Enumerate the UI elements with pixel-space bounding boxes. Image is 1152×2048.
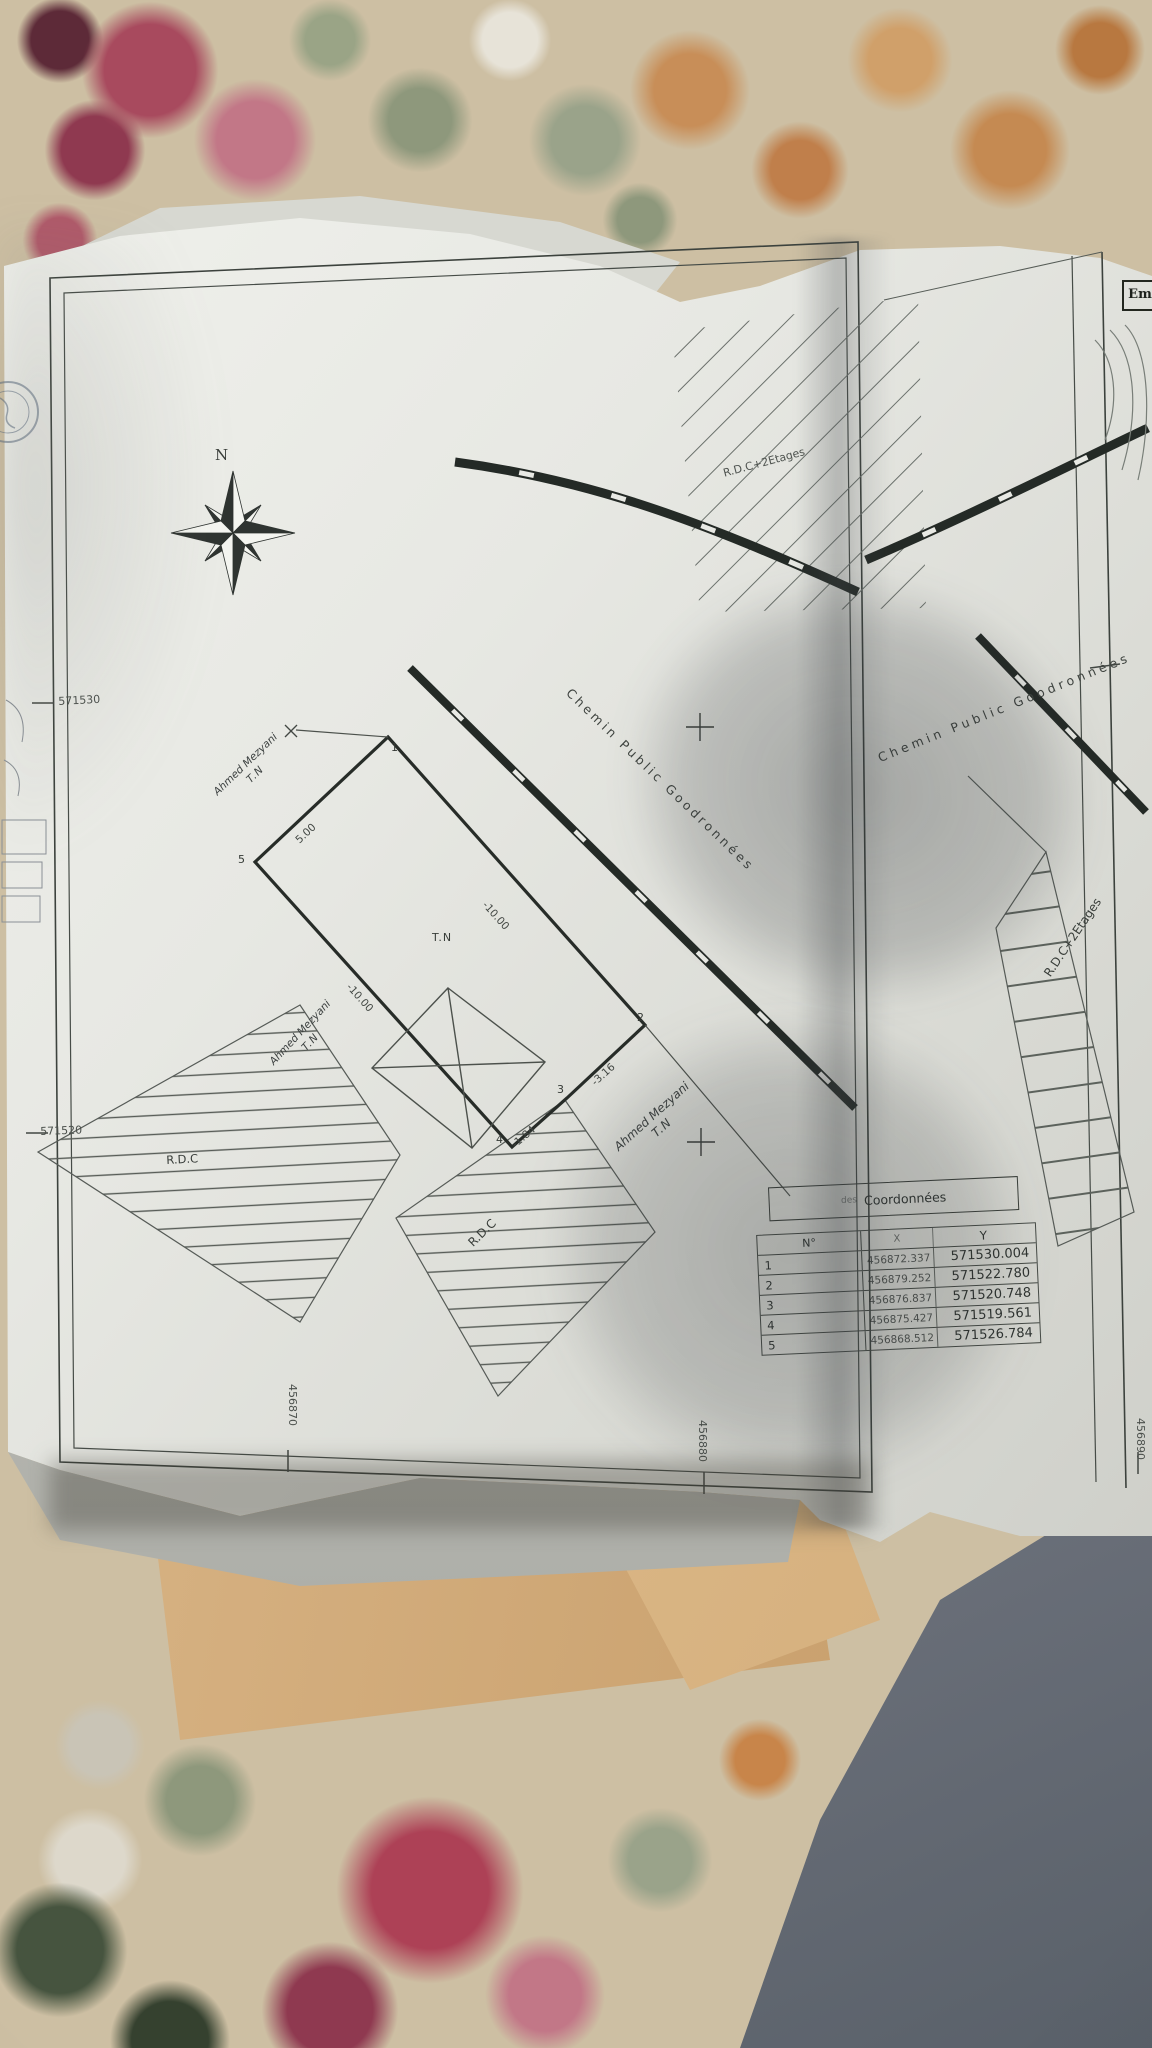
contour-lines	[1095, 325, 1147, 480]
hatch-building-bottom-left	[38, 1005, 400, 1322]
grid-label-y-571520: 571520	[40, 1125, 82, 1139]
parcel-corner-3: 3	[557, 1084, 564, 1096]
coordinates-table-grid: N° X Y 1 456872.337 571530.004 2 456879.…	[756, 1222, 1041, 1356]
north-label: N	[215, 447, 228, 464]
plan-linework	[0, 0, 1152, 2048]
grid-label-x-456880: 456880	[696, 1420, 708, 1462]
cell-x: 456872.337	[862, 1248, 935, 1270]
frame-right-page	[1072, 256, 1096, 1482]
terrain-note: T.N	[432, 932, 452, 944]
cell-y: 571526.784	[938, 1323, 1039, 1347]
table-title-prefix: des	[841, 1195, 857, 1206]
parcel-corner-5: 5	[238, 854, 245, 866]
building-square	[372, 988, 545, 1148]
compass-rose	[171, 471, 295, 595]
cell-x: 456868.512	[866, 1328, 939, 1350]
stamp-mark	[0, 382, 38, 442]
cell-x: 456879.252	[863, 1268, 936, 1290]
parcel-corner-2: 2	[637, 1012, 644, 1024]
parcel-corner-1: 1	[391, 742, 398, 754]
grid-label-x-456870: 456870	[286, 1384, 298, 1426]
road-middle	[410, 668, 855, 1108]
margin-notes	[2, 700, 46, 922]
parcel-corner-4: 4	[496, 1134, 503, 1146]
table-title: Coordonnées	[864, 1189, 947, 1208]
cell-x: 456876.837	[864, 1288, 937, 1310]
cell-x: 456875.427	[865, 1308, 938, 1330]
photo-of-site-plan: N R.D.C+2Etages Chemin Public Goodronnée…	[0, 0, 1152, 2048]
grid-label-y-571530: 571530	[58, 694, 101, 708]
corner-title-box: Em	[1122, 280, 1152, 311]
survey-x-mark	[285, 725, 297, 737]
building-label-rdc-left: R.D.C	[166, 1152, 198, 1166]
coordinates-table: des Coordonnées N° X Y 1 456872.337 5715…	[754, 1175, 1047, 1356]
grid-label-x-456890: 456890	[1134, 1418, 1146, 1460]
cell-n: 5	[762, 1331, 867, 1355]
col-header-x: X	[861, 1228, 934, 1250]
